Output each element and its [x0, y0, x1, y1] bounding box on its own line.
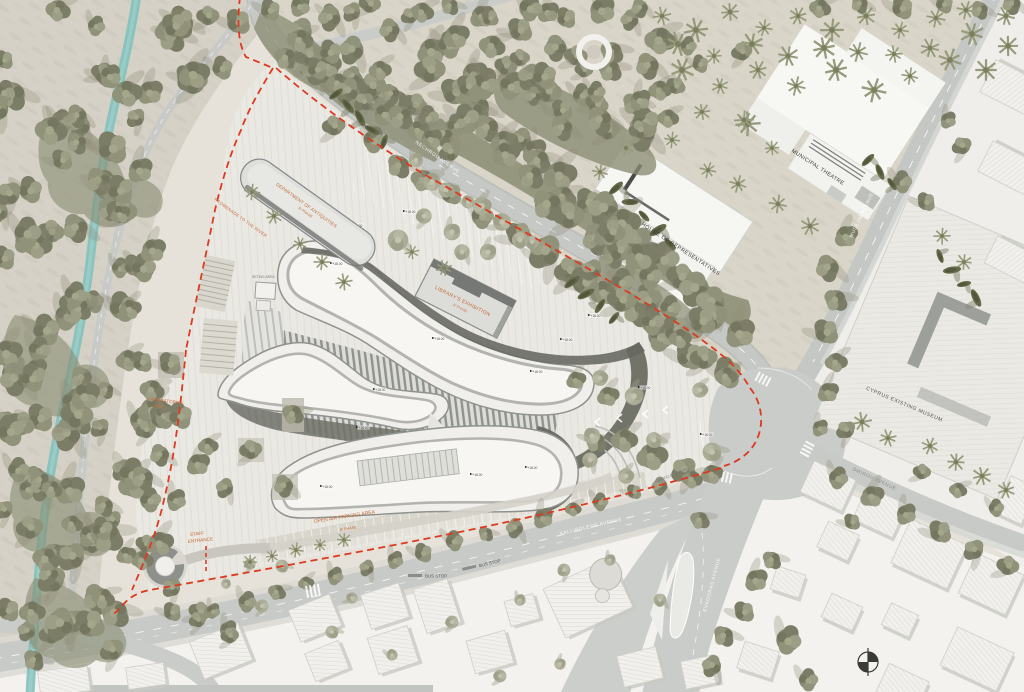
svg-text:+18.00: +18.00: [563, 338, 573, 342]
svg-text:+18.00: +18.00: [641, 386, 651, 390]
svg-text:+18.00: +18.00: [323, 485, 333, 489]
svg-text:SETING AREA: SETING AREA: [252, 275, 275, 279]
svg-text:+18.00: +18.00: [533, 370, 543, 374]
svg-text:+18.00: +18.00: [591, 314, 601, 318]
svg-text:+18.00: +18.00: [473, 473, 483, 477]
svg-text:+18.00: +18.00: [359, 426, 369, 430]
svg-text:+18.00: +18.00: [528, 466, 538, 470]
svg-text:+18.00: +18.00: [435, 337, 445, 341]
svg-text:+18.00: +18.00: [376, 388, 386, 392]
svg-text:+18.00: +18.00: [406, 210, 416, 214]
svg-text:+18.00: +18.00: [333, 262, 343, 266]
svg-text:+18.00: +18.00: [703, 433, 713, 437]
svg-text:BUS STOP: BUS STOP: [425, 574, 447, 579]
